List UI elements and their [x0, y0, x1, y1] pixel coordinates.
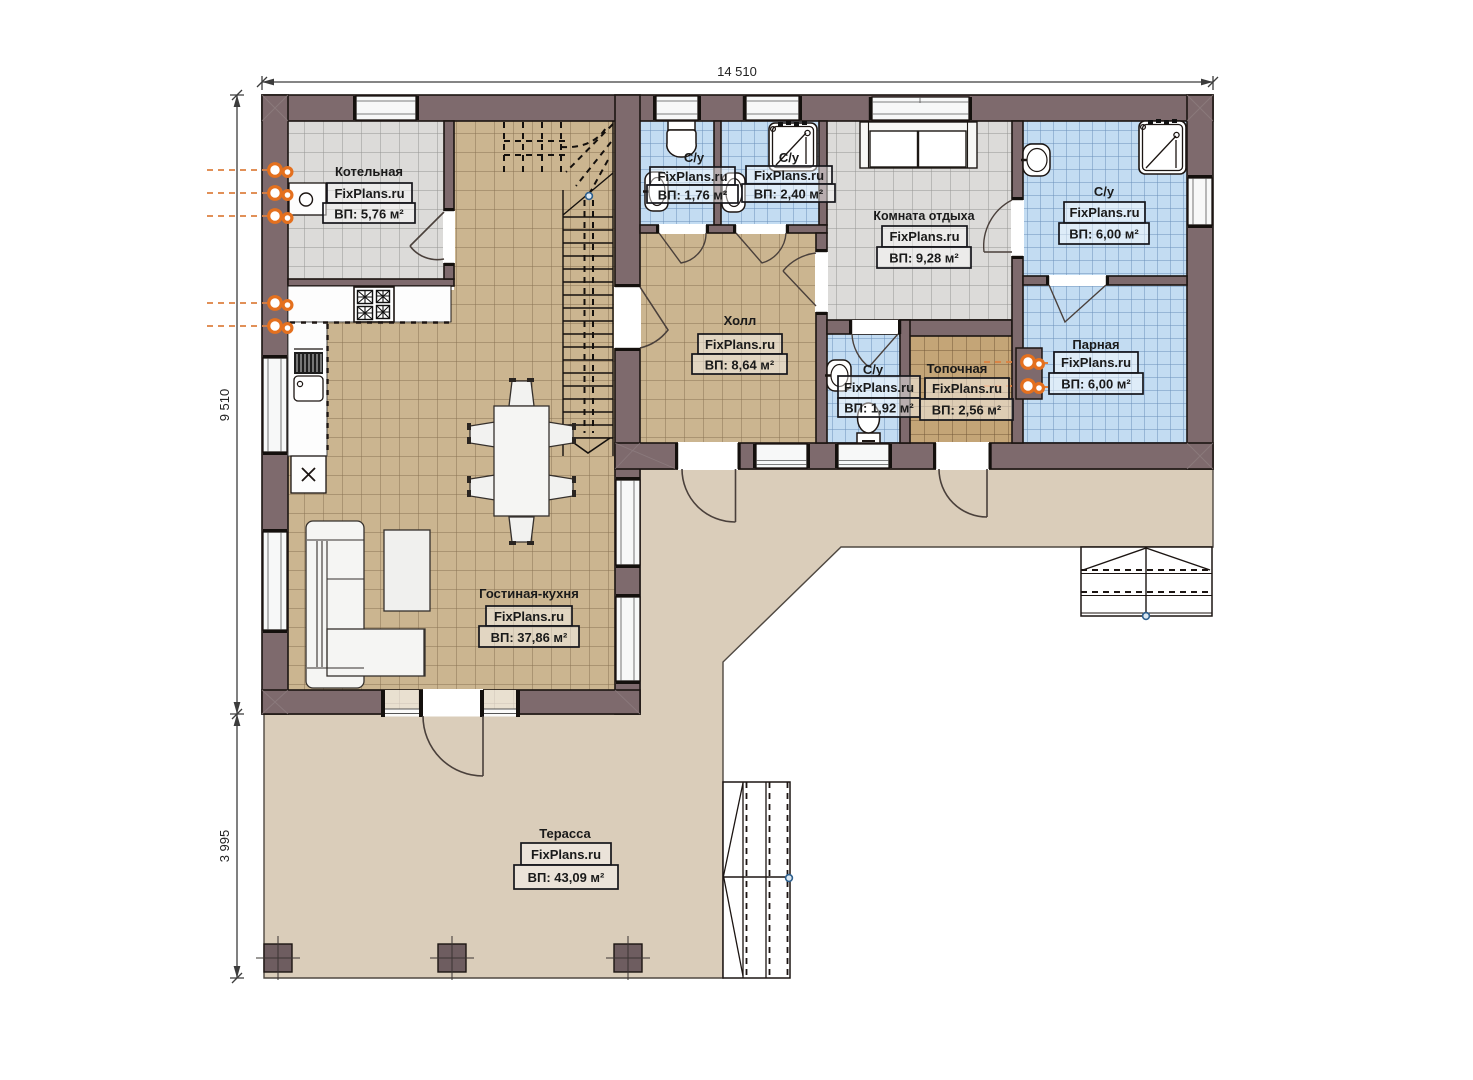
svg-text:FixPlans.ru: FixPlans.ru: [494, 609, 564, 624]
svg-text:С/у: С/у: [779, 150, 800, 165]
svg-text:ВП: 8,64 м²: ВП: 8,64 м²: [705, 358, 775, 373]
svg-text:FixPlans.ru: FixPlans.ru: [1061, 355, 1131, 370]
svg-text:ВП: 1,76 м²: ВП: 1,76 м²: [658, 188, 728, 203]
svg-text:ВП: 9,28 м²: ВП: 9,28 м²: [889, 251, 959, 266]
svg-text:FixPlans.ru: FixPlans.ru: [1069, 205, 1139, 220]
svg-text:Комната отдыха: Комната отдыха: [873, 209, 975, 223]
svg-text:9 510: 9 510: [217, 389, 232, 422]
svg-text:FixPlans.ru: FixPlans.ru: [754, 168, 824, 183]
svg-text:FixPlans.ru: FixPlans.ru: [334, 186, 404, 201]
svg-text:ВП: 5,76 м²: ВП: 5,76 м²: [334, 207, 404, 222]
svg-text:Топочная: Топочная: [927, 361, 988, 376]
svg-text:14 510: 14 510: [717, 64, 757, 79]
svg-text:ВП: 37,86 м²: ВП: 37,86 м²: [491, 630, 568, 645]
svg-text:3 995: 3 995: [217, 830, 232, 863]
svg-text:ВП: 2,56 м²: ВП: 2,56 м²: [932, 403, 1002, 418]
svg-text:Холл: Холл: [724, 313, 757, 328]
svg-text:ВП: 6,00 м²: ВП: 6,00 м²: [1069, 227, 1139, 242]
svg-text:ВП: 6,00 м²: ВП: 6,00 м²: [1061, 377, 1131, 392]
svg-text:С/у: С/у: [1094, 184, 1115, 199]
svg-text:FixPlans.ru: FixPlans.ru: [844, 380, 914, 395]
svg-text:Парная: Парная: [1072, 337, 1119, 352]
svg-text:ВП: 43,09 м²: ВП: 43,09 м²: [528, 870, 605, 885]
svg-text:С/у: С/у: [863, 362, 884, 377]
svg-text:FixPlans.ru: FixPlans.ru: [657, 169, 727, 184]
svg-text:FixPlans.ru: FixPlans.ru: [932, 381, 1002, 396]
svg-text:ВП: 1,92 м²: ВП: 1,92 м²: [844, 401, 914, 416]
svg-text:Терасса: Терасса: [539, 826, 591, 841]
svg-text:С/у: С/у: [684, 150, 705, 165]
svg-text:Гостиная-кухня: Гостиная-кухня: [479, 586, 579, 601]
svg-text:Котельная: Котельная: [335, 164, 403, 179]
svg-text:ВП: 2,40 м²: ВП: 2,40 м²: [754, 187, 824, 202]
svg-text:FixPlans.ru: FixPlans.ru: [705, 337, 775, 352]
svg-text:FixPlans.ru: FixPlans.ru: [889, 229, 959, 244]
svg-text:FixPlans.ru: FixPlans.ru: [531, 847, 601, 862]
